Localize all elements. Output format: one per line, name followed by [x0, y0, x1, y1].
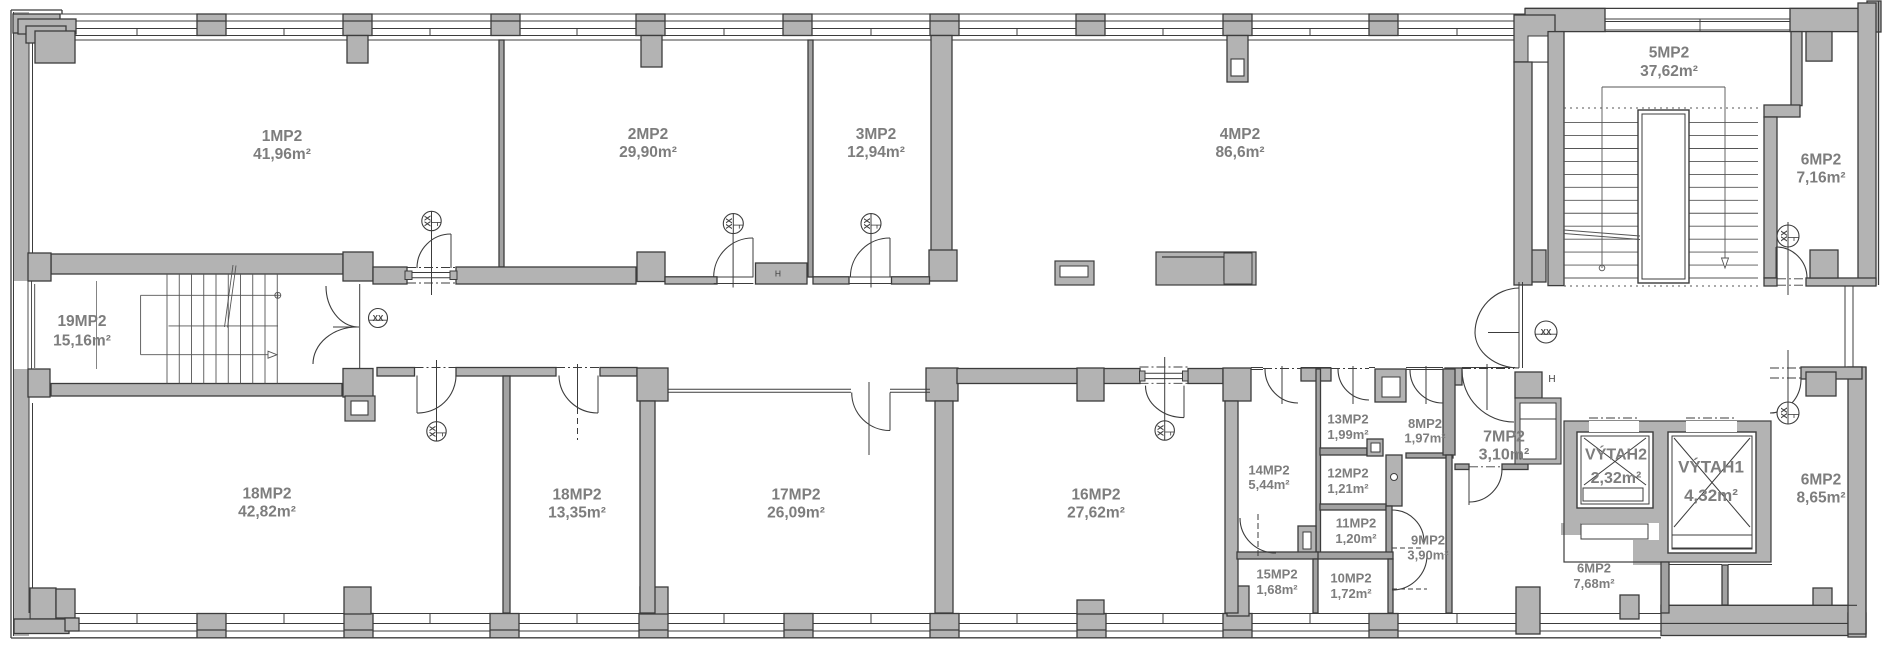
- svg-text:1,21m²: 1,21m²: [1327, 481, 1369, 496]
- svg-text:27,62m²: 27,62m²: [1067, 505, 1125, 522]
- svg-text:10MP2: 10MP2: [1330, 571, 1371, 586]
- svg-text:XX: XX: [724, 218, 734, 230]
- svg-text:8MP2: 8MP2: [1408, 416, 1442, 431]
- svg-text:1,68m²: 1,68m²: [1256, 582, 1298, 597]
- svg-text:XX: XX: [1779, 230, 1789, 242]
- svg-text:8,65m²: 8,65m²: [1796, 490, 1845, 507]
- svg-text:1,72m²: 1,72m²: [1330, 586, 1372, 601]
- svg-text:16MP2: 16MP2: [1071, 487, 1120, 504]
- svg-text:7,68m²: 7,68m²: [1573, 576, 1615, 591]
- svg-text:XX: XX: [1156, 425, 1166, 437]
- svg-text:6MP2: 6MP2: [1801, 472, 1842, 489]
- svg-text:H: H: [775, 269, 781, 279]
- svg-text:XX: XX: [1541, 328, 1552, 337]
- svg-text:VÝTAH2: VÝTAH2: [1585, 445, 1647, 464]
- svg-text:18MP2: 18MP2: [242, 486, 291, 503]
- svg-text:12MP2: 12MP2: [1327, 466, 1368, 481]
- svg-text:41,96m²: 41,96m²: [253, 146, 311, 163]
- svg-text:3,90m²: 3,90m²: [1407, 548, 1449, 563]
- svg-text:9MP2: 9MP2: [1411, 533, 1445, 548]
- svg-text:12,94m²: 12,94m²: [847, 144, 905, 161]
- svg-text:1,99m²: 1,99m²: [1327, 427, 1369, 442]
- svg-text:29,90m²: 29,90m²: [619, 144, 677, 161]
- svg-text:15,16m²: 15,16m²: [53, 333, 111, 350]
- svg-text:XX: XX: [862, 218, 872, 230]
- svg-text:7,16m²: 7,16m²: [1796, 170, 1845, 187]
- svg-text:42,82m²: 42,82m²: [238, 504, 296, 521]
- svg-text:XX: XX: [422, 215, 432, 227]
- svg-text:3MP2: 3MP2: [856, 126, 897, 143]
- svg-text:5,44m²: 5,44m²: [1248, 477, 1290, 492]
- svg-text:XX: XX: [373, 314, 384, 323]
- svg-text:14MP2: 14MP2: [1248, 463, 1289, 478]
- svg-text:VÝTAH1: VÝTAH1: [1678, 458, 1744, 477]
- svg-text:15MP2: 15MP2: [1256, 567, 1297, 582]
- svg-text:2MP2: 2MP2: [628, 126, 669, 143]
- svg-text:19MP2: 19MP2: [57, 313, 106, 330]
- svg-text:H: H: [1548, 374, 1555, 385]
- svg-text:4MP2: 4MP2: [1220, 126, 1261, 143]
- svg-text:37,62m²: 37,62m²: [1640, 63, 1698, 80]
- svg-text:13MP2: 13MP2: [1327, 412, 1368, 427]
- svg-text:86,6m²: 86,6m²: [1215, 144, 1264, 161]
- svg-text:6MP2: 6MP2: [1577, 561, 1611, 576]
- svg-text:17MP2: 17MP2: [771, 487, 820, 504]
- svg-text:11MP2: 11MP2: [1336, 516, 1376, 531]
- svg-text:1,97m²: 1,97m²: [1404, 431, 1446, 446]
- svg-text:4,32m²: 4,32m²: [1684, 486, 1738, 505]
- svg-text:13,35m²: 13,35m²: [548, 505, 606, 522]
- svg-text:1,20m²: 1,20m²: [1335, 531, 1377, 546]
- svg-text:18MP2: 18MP2: [552, 487, 601, 504]
- svg-text:7MP2: 7MP2: [1483, 429, 1525, 446]
- svg-text:XX: XX: [1779, 407, 1789, 419]
- svg-text:XX: XX: [427, 425, 437, 437]
- svg-text:1MP2: 1MP2: [262, 128, 303, 145]
- svg-text:3,10m²: 3,10m²: [1479, 447, 1530, 464]
- svg-text:2,32m²: 2,32m²: [1591, 470, 1642, 487]
- svg-text:26,09m²: 26,09m²: [767, 505, 825, 522]
- svg-text:5MP2: 5MP2: [1649, 45, 1690, 62]
- svg-text:6MP2: 6MP2: [1801, 152, 1842, 169]
